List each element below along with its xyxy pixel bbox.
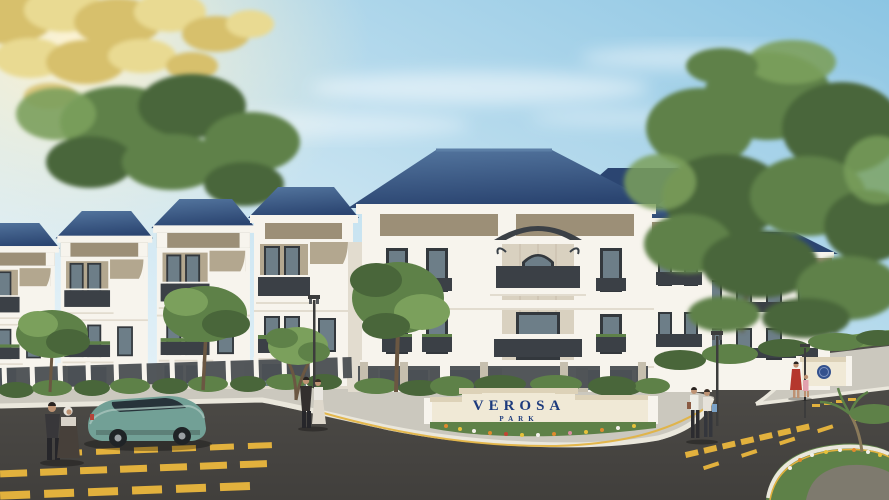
low-wall <box>574 398 648 424</box>
crosswalk-dash <box>240 460 267 468</box>
crosswalk-dash <box>40 468 67 476</box>
balcony-railing <box>494 339 582 357</box>
pillar-cap <box>555 388 578 394</box>
foliage-blob <box>16 88 96 140</box>
verosa-park-rendering: VEROSA PARK <box>0 0 889 500</box>
pillar-cap <box>459 388 482 394</box>
sign-subtitle: PARK <box>499 415 538 423</box>
car <box>84 396 212 451</box>
fence-post <box>337 354 343 380</box>
taillight <box>90 414 94 420</box>
end-post <box>846 356 852 386</box>
crosswalk-dash <box>80 466 107 474</box>
crosswalk-dash <box>200 462 227 470</box>
crosswalk-dash <box>120 465 147 473</box>
crosswalk-dash <box>44 489 74 498</box>
balcony-railing <box>496 266 580 288</box>
crosswalk-dash <box>812 404 820 407</box>
crosswalk-dash <box>848 398 856 401</box>
foliage-blob <box>762 298 850 338</box>
foliage-blob <box>624 154 696 210</box>
eave-fascia <box>356 204 656 214</box>
foliage-blob <box>108 39 176 73</box>
crosswalk-dash <box>88 487 118 496</box>
foliage-blob <box>226 10 274 38</box>
handbag <box>687 402 691 409</box>
townhouse-unit <box>55 211 153 389</box>
end-post <box>648 396 658 424</box>
crosswalk-dash <box>0 490 30 499</box>
crosswalk-dash <box>0 469 27 477</box>
low-wall <box>432 400 464 424</box>
foliage-blob <box>688 296 760 332</box>
sign-title: VEROSA <box>473 398 566 414</box>
sign-wall-coping <box>475 388 563 393</box>
foliage-blob <box>686 48 758 84</box>
crosswalk-dash <box>176 484 206 493</box>
foliage-blob <box>46 136 134 188</box>
crosswalk-dash <box>160 463 187 471</box>
crosswalk-dash <box>210 444 234 451</box>
crosswalk-dash <box>248 442 272 449</box>
crosswalk-dash <box>220 482 250 491</box>
scene: VEROSA PARK <box>0 0 889 500</box>
crosswalk-dash <box>132 485 162 494</box>
foliage-blob <box>748 40 836 84</box>
tote-bag <box>712 404 717 412</box>
fence-post <box>225 358 231 384</box>
cloud <box>310 72 650 104</box>
